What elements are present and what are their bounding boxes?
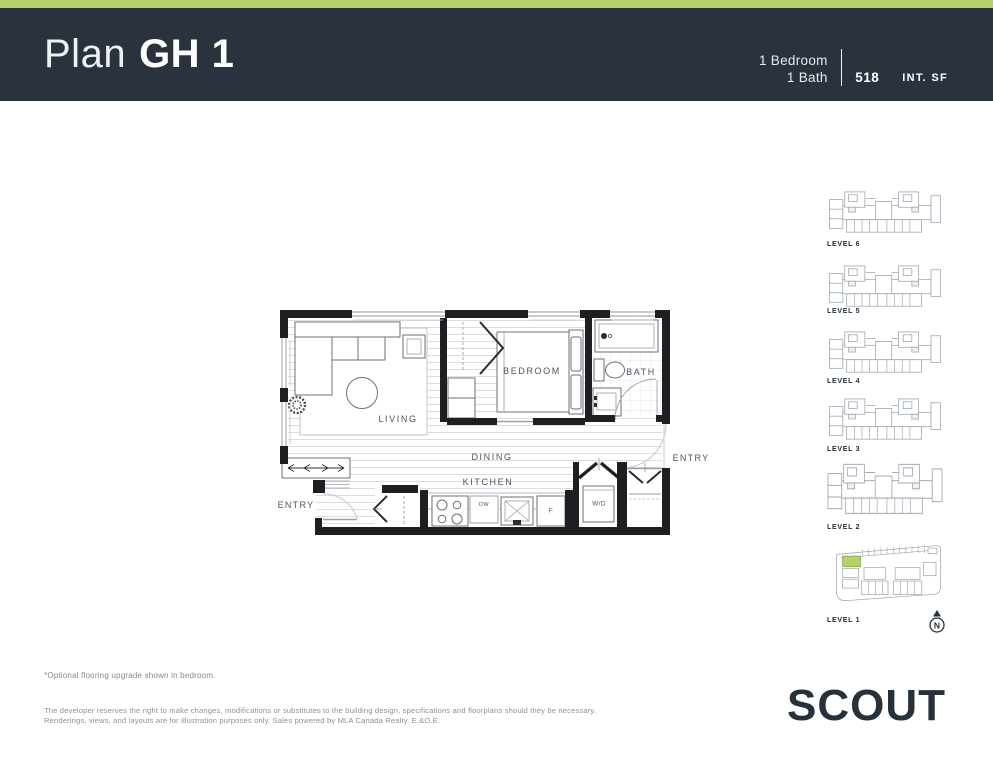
level-1-diagram: [826, 541, 950, 605]
bed-bath-counts: 1 Bedroom 1 Bath: [759, 52, 828, 86]
level-6-diagram: [826, 190, 944, 236]
level-5-diagram: [826, 264, 944, 310]
disclaimer-line-2: Renderings, views, and layouts are for i…: [44, 716, 664, 726]
accent-bar: [0, 0, 993, 8]
level-key: LEVEL 6 LEVEL 5 LEVEL 4 LEVEL 3 LEVEL 2: [826, 190, 952, 660]
highlighted-unit: [843, 556, 861, 567]
level-6-label: LEVEL 6: [827, 241, 860, 248]
level-3-diagram: [826, 397, 944, 443]
sqft-unit-label: INT. SF: [902, 72, 948, 86]
bedroom-count: 1 Bedroom: [759, 52, 828, 69]
level-3-label: LEVEL 3: [827, 446, 860, 453]
floorplan-sheet: Plan GH 1 1 Bedroom 1 Bath 518 INT. SF: [0, 0, 993, 768]
flooring-footnote: *Optional flooring upgrade shown in bedr…: [44, 671, 216, 680]
header: Plan GH 1 1 Bedroom 1 Bath 518 INT. SF: [0, 8, 993, 101]
room-label-kitchen: KITCHEN: [463, 477, 514, 487]
plan-label: Plan: [44, 32, 126, 77]
north-letter: N: [934, 621, 940, 631]
room-label-bath: BATH: [626, 367, 656, 377]
level-1-label: LEVEL 1: [827, 617, 860, 624]
level-5-label: LEVEL 5: [827, 308, 860, 315]
room-label-bedroom: BEDROOM: [503, 366, 561, 376]
entry-label-left: ENTRY: [278, 500, 315, 510]
level-2-diagram: [826, 462, 944, 518]
plan-name: GH 1: [139, 32, 234, 77]
room-label-dining: DINING: [471, 452, 512, 462]
sqft-value: 518: [855, 70, 879, 86]
disclaimer-line-1: The developer reserves the right to make…: [44, 706, 664, 716]
washer-dryer-label: W/D: [592, 501, 606, 508]
dishwasher-label: DW: [479, 502, 489, 508]
bath-count: 1 Bath: [759, 69, 828, 86]
level-2-label: LEVEL 2: [827, 524, 860, 531]
entry-label-right: ENTRY: [673, 453, 710, 463]
page-title: Plan GH 1: [44, 8, 234, 101]
room-label-living: LIVING: [378, 414, 417, 424]
fridge-label: F: [549, 508, 553, 515]
level-4-diagram: [826, 330, 944, 376]
floorplan-drawing: [270, 300, 710, 540]
spec-divider: [841, 49, 843, 86]
legal-disclaimer: The developer reserves the right to make…: [44, 706, 664, 726]
unit-specs: 1 Bedroom 1 Bath 518 INT. SF: [759, 49, 948, 86]
scout-logo: SCOUT: [787, 681, 946, 731]
north-arrow-icon: N: [928, 609, 946, 635]
level-4-label: LEVEL 4: [827, 378, 860, 385]
